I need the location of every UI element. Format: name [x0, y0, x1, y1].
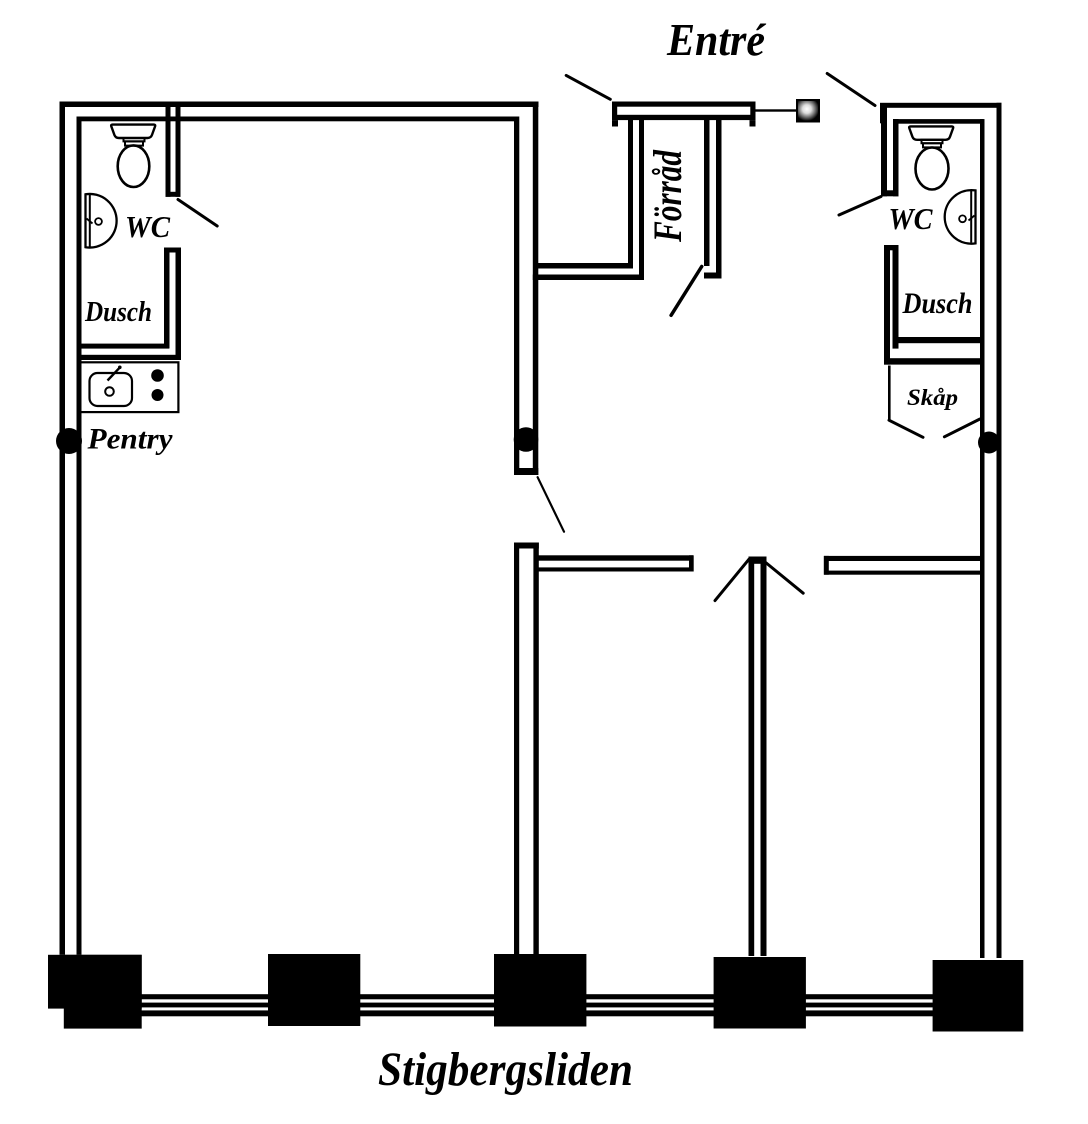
svg-text:Skåp: Skåp [907, 385, 958, 410]
svg-text:Dusch: Dusch [902, 287, 973, 320]
svg-text:Pentry: Pentry [86, 423, 173, 456]
svg-text:WC: WC [125, 209, 170, 244]
svg-text:Entré: Entré [666, 15, 767, 65]
svg-text:Förråd: Förråd [645, 149, 690, 243]
svg-text:WC: WC [889, 201, 933, 236]
svg-text:Dusch: Dusch [84, 296, 152, 328]
svg-text:Stigbergsliden: Stigbergsliden [378, 1043, 633, 1096]
